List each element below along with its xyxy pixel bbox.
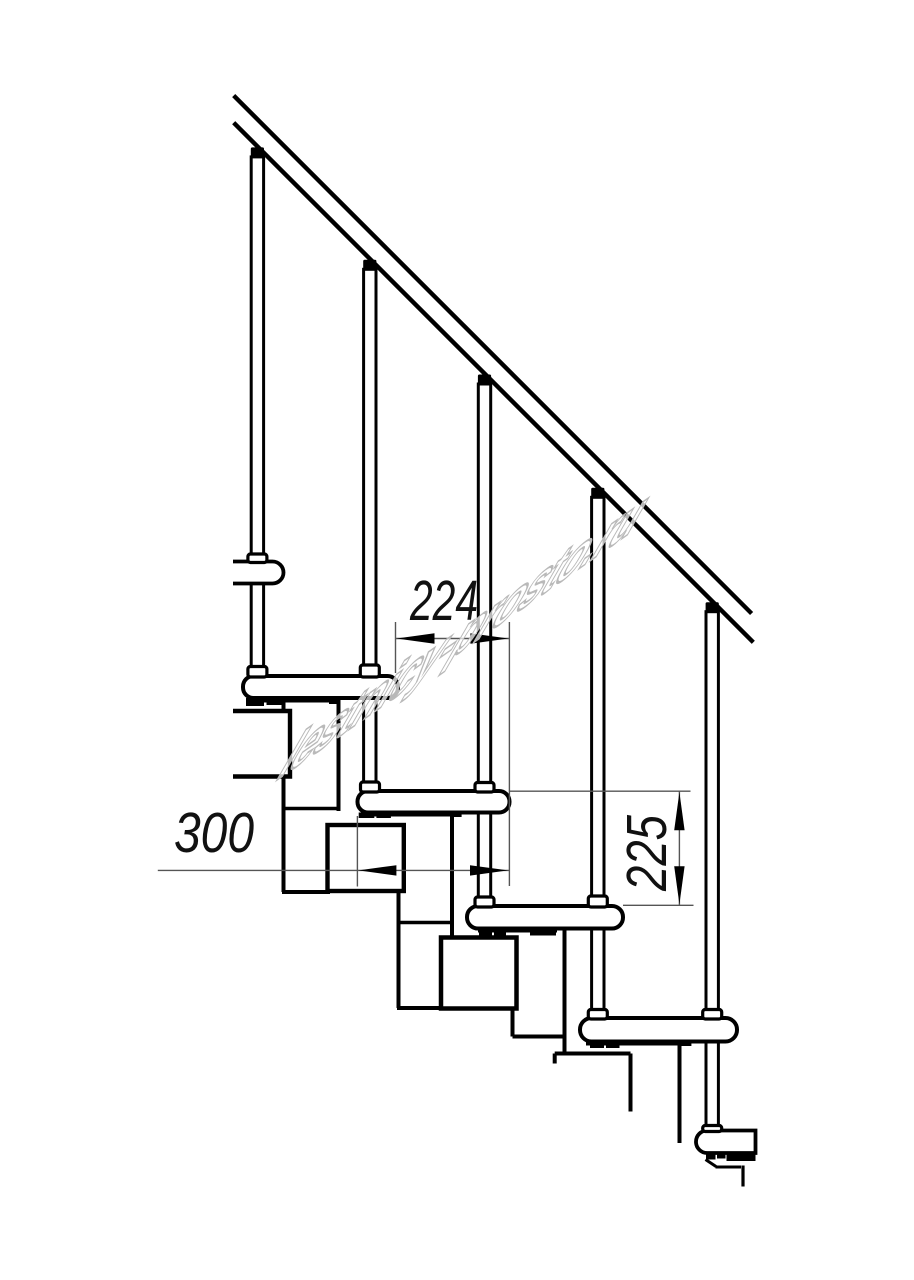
svg-text:225: 225 xyxy=(615,815,679,892)
svg-text:300: 300 xyxy=(174,801,254,865)
